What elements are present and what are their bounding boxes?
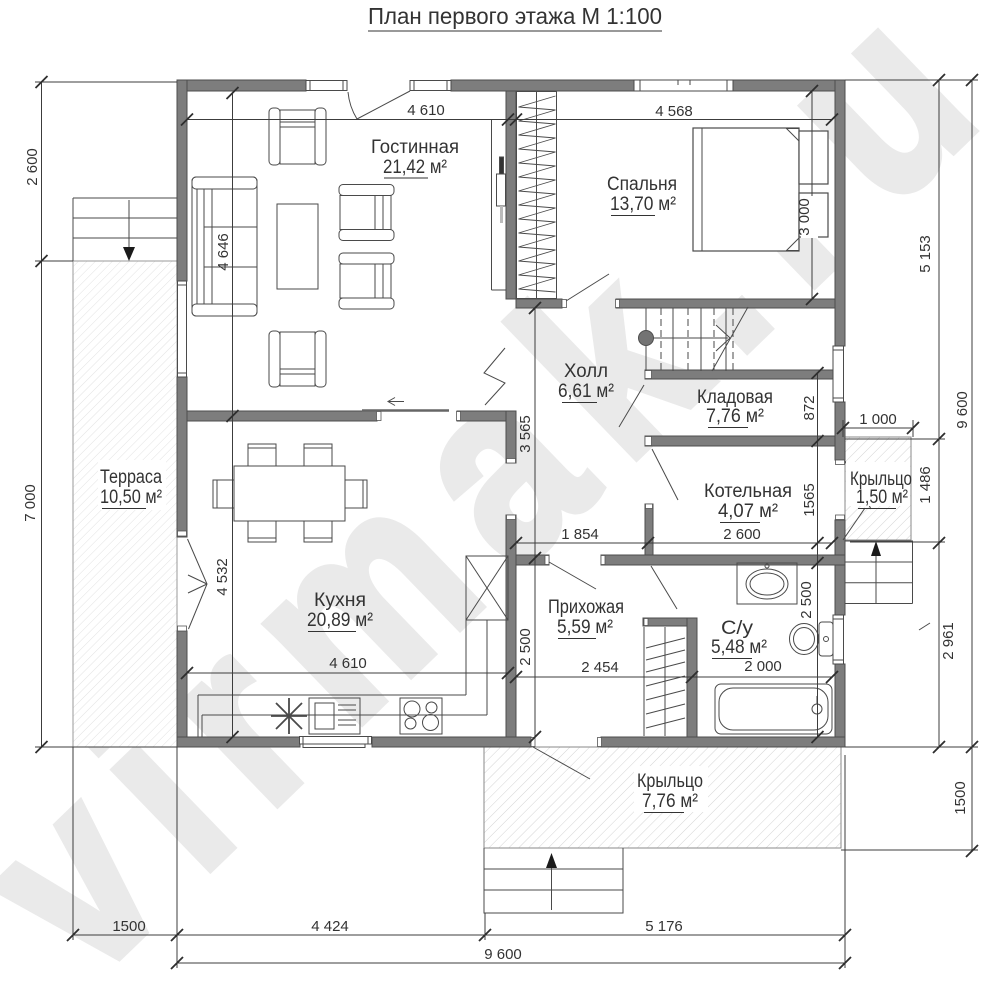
svg-text:1 486: 1 486	[917, 466, 934, 504]
svg-text:4,07 м²: 4,07 м²	[718, 501, 778, 522]
svg-text:1500: 1500	[952, 781, 969, 814]
svg-text:5 176: 5 176	[645, 918, 683, 935]
svg-text:2 961: 2 961	[940, 622, 957, 660]
svg-text:872: 872	[801, 395, 818, 420]
svg-text:7 000: 7 000	[22, 484, 39, 522]
svg-text:Крыльцо: Крыльцо	[637, 771, 703, 792]
svg-text:2 600: 2 600	[723, 526, 761, 543]
svg-text:2 454: 2 454	[581, 659, 619, 676]
svg-text:6,61 м²: 6,61 м²	[558, 381, 614, 402]
svg-text:4 424: 4 424	[311, 918, 349, 935]
svg-text:1500: 1500	[112, 918, 145, 935]
svg-text:2 000: 2 000	[744, 658, 782, 675]
svg-text:С/у: С/у	[721, 618, 754, 639]
svg-text:7,76 м²: 7,76 м²	[642, 791, 698, 812]
svg-text:9 600: 9 600	[954, 391, 971, 429]
svg-text:13,70 м²: 13,70 м²	[610, 194, 676, 215]
svg-text:9 600: 9 600	[484, 946, 522, 963]
svg-text:1,50 м²: 1,50 м²	[856, 487, 908, 508]
svg-text:2 600: 2 600	[24, 148, 41, 186]
svg-text:5,59 м²: 5,59 м²	[557, 617, 613, 638]
svg-text:Кухня: Кухня	[314, 590, 366, 611]
svg-text:4 610: 4 610	[329, 655, 367, 672]
svg-text:3 565: 3 565	[517, 415, 534, 453]
svg-text:Холл: Холл	[564, 361, 608, 382]
svg-text:5,48 м²: 5,48 м²	[711, 637, 767, 658]
svg-text:1 000: 1 000	[859, 411, 897, 428]
svg-text:4 610: 4 610	[407, 102, 445, 119]
svg-text:Терраса: Терраса	[100, 467, 162, 488]
svg-text:4 532: 4 532	[214, 558, 231, 596]
svg-text:4 568: 4 568	[655, 103, 693, 120]
svg-text:20,89 м²: 20,89 м²	[307, 610, 373, 631]
svg-text:5 153: 5 153	[917, 235, 934, 273]
svg-text:План первого этажа М 1:100: План первого этажа М 1:100	[368, 3, 662, 29]
svg-text:2 500: 2 500	[517, 628, 534, 666]
svg-text:Кладовая: Кладовая	[697, 387, 773, 408]
svg-text:3 000: 3 000	[796, 198, 813, 236]
svg-text:1 854: 1 854	[561, 526, 599, 543]
svg-text:10,50 м²: 10,50 м²	[100, 487, 162, 508]
svg-text:Гостинная: Гостинная	[371, 137, 459, 158]
svg-text:Спальня: Спальня	[607, 174, 677, 195]
svg-text:2 500: 2 500	[798, 581, 815, 619]
svg-text:Котельная: Котельная	[704, 481, 792, 502]
svg-text:7,76 м²: 7,76 м²	[706, 406, 764, 427]
svg-text:21,42 м²: 21,42 м²	[383, 157, 447, 178]
svg-text:4 646: 4 646	[215, 233, 232, 271]
svg-text:1565: 1565	[801, 483, 818, 516]
svg-text:Прихожая: Прихожая	[548, 597, 624, 618]
